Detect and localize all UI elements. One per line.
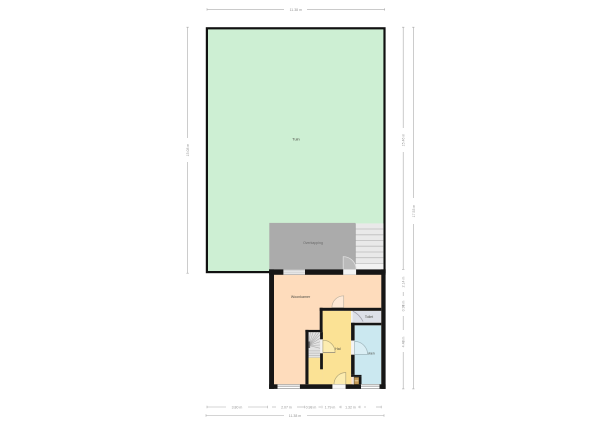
svg-text:Hal: Hal [335,347,341,351]
svg-text:2.07 m: 2.07 m [281,406,292,410]
svg-text:17.53 m: 17.53 m [412,205,416,218]
svg-text:4.48 m: 4.48 m [402,337,406,348]
svg-text:Woonkamer: Woonkamer [291,295,311,299]
svg-text:Overkapping: Overkapping [303,241,323,245]
svg-text:15.46 m: 15.46 m [402,134,406,147]
svg-text:1.79 m: 1.79 m [325,406,336,410]
svg-text:Tuin: Tuin [292,137,299,142]
svg-text:1.32 m: 1.32 m [345,406,356,410]
svg-text:0.98 m: 0.98 m [306,406,317,410]
svg-text:Toilet: Toilet [365,315,373,319]
svg-text:11.38 m: 11.38 m [290,8,302,12]
svg-text:2.14 m: 2.14 m [402,277,406,288]
svg-text:11.38 m: 11.38 m [289,414,301,418]
svg-text:0.98 m: 0.98 m [402,301,406,312]
svg-text:3.80 m: 3.80 m [232,406,243,410]
svg-text:15.08 m: 15.08 m [186,144,190,157]
